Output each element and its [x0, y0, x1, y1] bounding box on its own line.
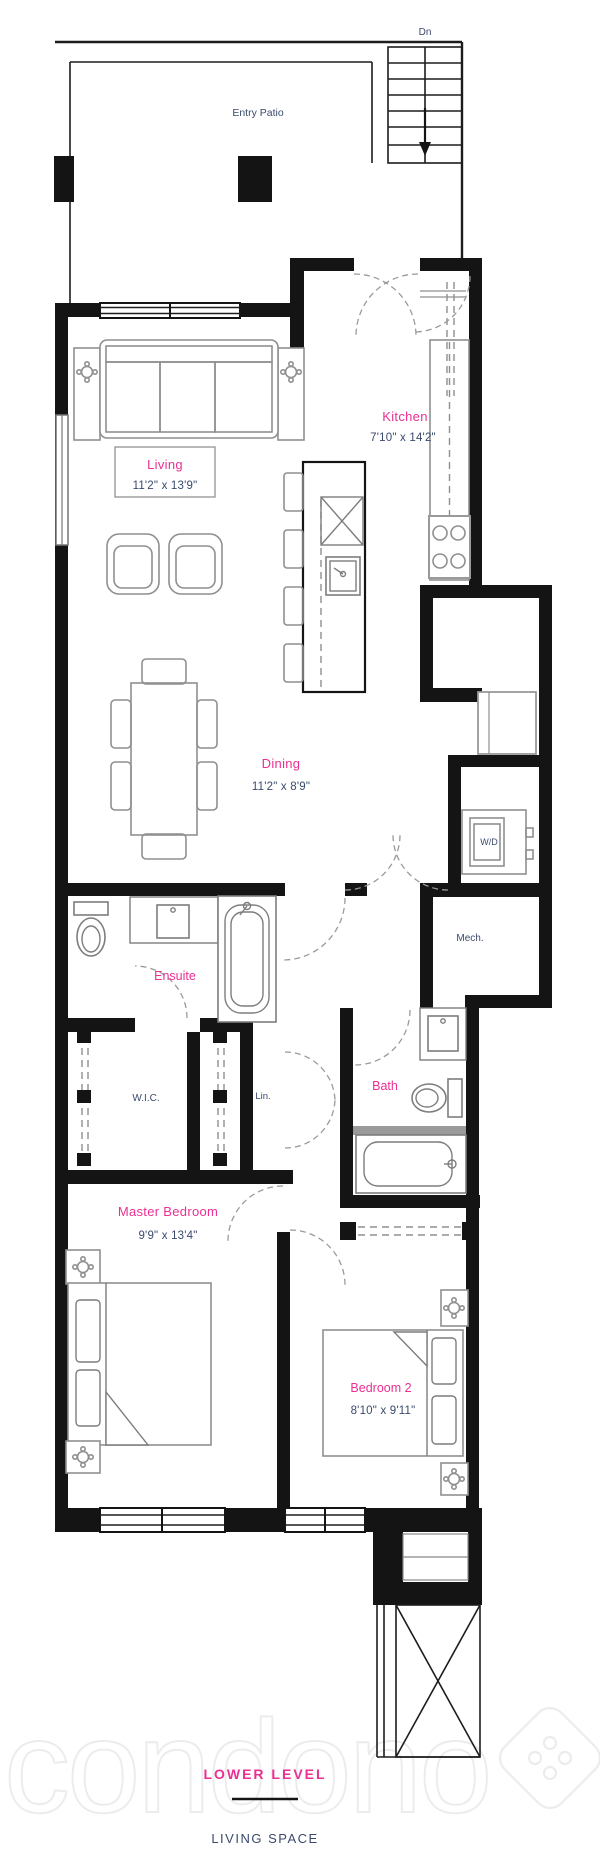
- dining-chair: [142, 659, 186, 684]
- wall-segment: [240, 1032, 253, 1184]
- wall-segment: [420, 688, 482, 702]
- window-well: [403, 1534, 468, 1580]
- wall-segment: [365, 1508, 482, 1532]
- mech-label: Mech.: [456, 933, 483, 944]
- wall-segment: [420, 585, 433, 688]
- level-subtitle: LIVING SPACE: [211, 1831, 318, 1846]
- dining-chair: [111, 700, 131, 748]
- nightstand: [66, 1441, 100, 1473]
- patio-label: Entry Patio: [232, 107, 284, 119]
- master-bedroom-window: [100, 1508, 225, 1532]
- wall-segment: [290, 258, 304, 350]
- armchair: [169, 534, 222, 594]
- master-bedroom-label: Master Bedroom: [118, 1204, 218, 1219]
- armchair: [107, 534, 159, 594]
- wall-segment: [340, 1222, 356, 1240]
- wall-segment: [468, 1532, 482, 1582]
- level-title: LOWER LEVEL: [203, 1766, 326, 1782]
- wall-segment: [55, 303, 101, 317]
- dining-chair: [142, 834, 186, 859]
- dining-table: [131, 683, 197, 835]
- bathtub: [356, 1135, 466, 1193]
- wall-segment: [253, 1170, 293, 1184]
- stairs-down: [388, 47, 462, 163]
- entry-patio: [54, 42, 462, 303]
- wall-segment: [277, 1285, 290, 1508]
- master-bedroom-furniture: [66, 1250, 211, 1473]
- vanity-sink: [420, 1008, 466, 1060]
- dining-chair: [111, 762, 131, 810]
- master-bedroom-dims: 9'9" x 13'4": [138, 1230, 197, 1242]
- patio-post: [54, 156, 74, 202]
- wall-segment: [55, 883, 285, 896]
- dining-dims: 11'2" x 8'9": [252, 781, 310, 793]
- wall-segment: [340, 1008, 353, 1208]
- master-bed: [68, 1283, 211, 1445]
- living-window: [100, 303, 240, 318]
- cooktop: [429, 516, 470, 578]
- stairs-label: Dn: [419, 27, 432, 38]
- living-furniture: [74, 340, 304, 594]
- toilet: [74, 902, 108, 956]
- floorplan-page: condono: [0, 0, 600, 1856]
- living-label: Living: [147, 457, 183, 472]
- wall-segment: [55, 1018, 135, 1032]
- wall-segment: [187, 1032, 200, 1184]
- bathtub: [218, 896, 276, 1022]
- wall-segment: [448, 755, 461, 887]
- wall-segment: [466, 995, 479, 1532]
- bath-fixtures: [353, 1008, 466, 1193]
- stairs-down-arrow-icon: [419, 142, 431, 156]
- living-side-window: [56, 415, 68, 545]
- wall-segment: [277, 1232, 290, 1285]
- ensuite-label: Ensuite: [154, 969, 196, 983]
- vanity-sink: [130, 897, 218, 943]
- dining-furniture: [111, 659, 217, 859]
- wall-segment: [373, 1582, 482, 1605]
- watermark-logo-icon: [493, 1701, 600, 1814]
- wic-label: W.I.C.: [132, 1093, 159, 1104]
- kitchen-label: Kitchen: [382, 409, 427, 424]
- wall-segment: [420, 883, 433, 1008]
- wall-segment: [55, 1170, 253, 1184]
- ensuite-fixtures: [74, 896, 276, 1022]
- wall-segment: [420, 883, 552, 897]
- kitchen-sink: [326, 557, 360, 595]
- dining-chair: [197, 700, 217, 748]
- wall-segment: [304, 258, 354, 271]
- kitchen-dims: 7'10" x 14'2": [370, 432, 436, 444]
- wall-segment: [448, 755, 540, 767]
- bedroom2-label: Bedroom 2: [350, 1381, 411, 1395]
- wall-segment: [539, 585, 552, 1008]
- fridge: [478, 692, 536, 754]
- dining-label: Dining: [262, 756, 301, 771]
- wall-segment: [462, 1222, 479, 1240]
- kitchen-fixtures: [284, 340, 536, 754]
- wall-segment: [55, 1508, 100, 1532]
- toilet: [412, 1079, 462, 1117]
- half-wall: [353, 1126, 466, 1135]
- bedroom2-dims: 8'10" x 9'11": [351, 1405, 416, 1417]
- nightstand: [66, 1250, 100, 1284]
- wall-segment: [340, 1195, 480, 1208]
- floorplan-drawing: condono: [0, 0, 600, 1856]
- wall-segment: [240, 303, 298, 317]
- bar-stools: [284, 473, 303, 682]
- patio-post: [238, 156, 272, 202]
- washer-dryer-label: W/D: [480, 837, 498, 847]
- sofa: [100, 340, 278, 438]
- bath-label: Bath: [372, 1079, 398, 1093]
- bedroom2-window: [285, 1508, 365, 1532]
- wall-segment: [420, 585, 552, 598]
- living-dims: 11'2" x 13'9": [133, 480, 198, 492]
- linen-label: Lin.: [255, 1091, 270, 1102]
- dining-chair: [197, 762, 217, 810]
- wall-segment: [225, 1508, 285, 1532]
